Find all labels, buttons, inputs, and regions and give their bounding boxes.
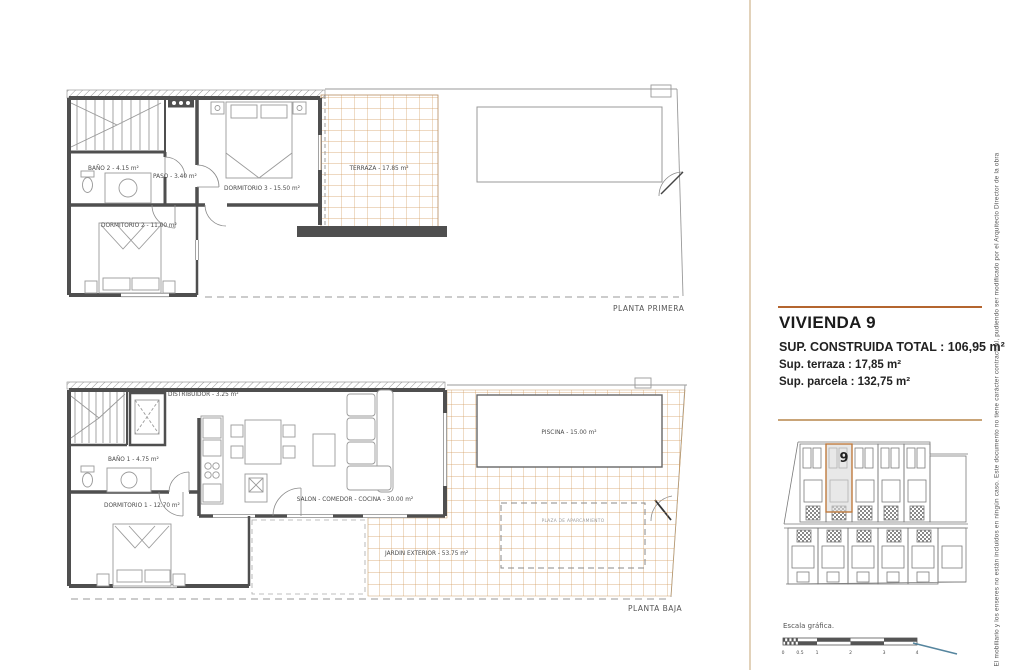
blue-north-mark <box>905 638 965 660</box>
utility-appliance <box>135 400 159 434</box>
front-pavement-dashed <box>252 520 365 594</box>
room-label-dormitorio1: DORMITORIO 1 - 12.70 m² <box>104 502 180 509</box>
plan-sheet: BAÑO 2 - 4.15 m² PASO - 3.40 m² DORMITOR… <box>0 0 1020 670</box>
installation-niche <box>168 99 194 108</box>
room-label-distribuidor: DISTRIBUIDOR - 3.25 m² <box>168 391 239 398</box>
plot-surface-line: Sup. parcela : 132,75 m² <box>779 376 910 388</box>
plan-title-primera: PLANTA PRIMERA <box>613 304 685 313</box>
scale-tick-0: 0 <box>782 650 785 656</box>
accent-rule-top <box>778 306 982 308</box>
room-label-dormitorio3: DORMITORIO 3 - 15.50 m² <box>224 185 300 192</box>
sofa <box>313 390 393 492</box>
terrace-tiles <box>321 95 438 231</box>
scale-bar <box>783 638 917 645</box>
bed-dormitorio1 <box>97 524 185 586</box>
floor-plan-planta-baja: DISTRIBUIDOR - 3.25 m² BAÑO 1 - 4.75 m² … <box>55 368 755 623</box>
pool-outline <box>477 107 662 182</box>
room-label-terraza: TERRAZA - 17.85 m² <box>348 165 408 172</box>
dining-table <box>231 420 295 464</box>
bed-dormitorio2 <box>85 223 175 293</box>
room-label-bano2: BAÑO 2 - 4.15 m² <box>88 165 139 172</box>
kitchen-island <box>245 474 267 502</box>
scale-tick-2: 2 <box>849 650 852 656</box>
panel-divider-line <box>749 0 751 670</box>
kitchen-counter <box>201 416 223 504</box>
upper-row-units <box>800 444 930 522</box>
bed-dormitorio3 <box>211 102 306 178</box>
door-arcs <box>152 157 226 228</box>
lower-row-units <box>788 528 966 584</box>
bathroom1-fixtures <box>81 466 151 492</box>
bathroom2-fixtures <box>81 171 151 203</box>
dwelling-title: VIVIENDA 9 <box>779 313 876 333</box>
room-label-jardin: JARDIN EXTERIOR - 53.75 m² <box>384 550 468 557</box>
room-label-aparcamiento: PLAZA DE APARCAMIENTO <box>542 518 605 524</box>
terrace-surface-line: Sup. terraza : 17,85 m² <box>779 359 901 371</box>
room-label-salon: SALON - COMEDOR - COCINA - 30.00 m² <box>297 496 413 503</box>
legal-disclaimer-text: El mobiliario y los enseres no están inc… <box>994 177 1001 667</box>
room-label-dormitorio2: DORMITORIO 2 - 11.00 m² <box>101 222 177 229</box>
door-arcs <box>159 472 301 516</box>
room-label-bano1: BAÑO 1 - 4.75 m² <box>108 456 159 463</box>
scale-tick-05: 0.5 <box>796 650 803 656</box>
plan-title-baja: PLANTA BAJA <box>628 604 682 613</box>
unit-number-label: 9 <box>839 451 848 466</box>
scale-tick-1: 1 <box>816 650 819 656</box>
room-label-paso: PASO - 3.40 m² <box>153 173 197 180</box>
room-label-piscina: PISCINA - 15.00 m² <box>541 429 596 436</box>
site-key-plan: 9 <box>778 432 973 594</box>
scale-tick-3: 3 <box>883 650 886 656</box>
staircase <box>71 100 161 150</box>
built-surface-line: SUP. CONSTRUIDA TOTAL : 106,95 m² <box>779 340 1005 354</box>
accent-rule-bottom <box>778 419 982 421</box>
floor-plan-planta-primera: BAÑO 2 - 4.15 m² PASO - 3.40 m² DORMITOR… <box>55 75 755 320</box>
staircase <box>71 392 125 443</box>
scale-caption: Escala gráfica. <box>783 622 834 630</box>
party-wall-hatch <box>67 382 445 389</box>
